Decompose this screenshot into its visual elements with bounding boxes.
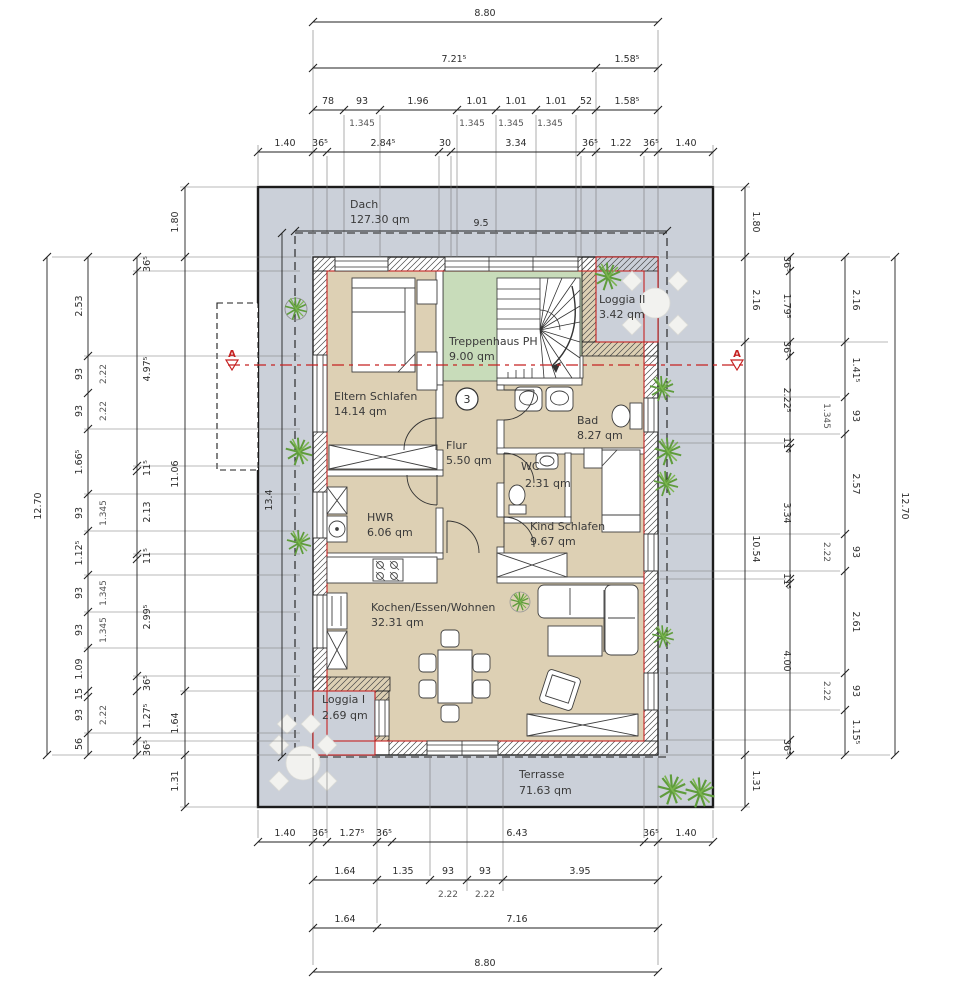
dim-label: 11⁵ bbox=[781, 437, 792, 453]
dim-label: 36⁵ bbox=[643, 138, 659, 149]
dim-label: 1.40 bbox=[675, 828, 696, 839]
dim-label: 93 bbox=[74, 507, 85, 519]
dim-label: 7.21⁵ bbox=[442, 54, 467, 65]
dim-label: 1.01 bbox=[505, 96, 526, 107]
dim-sublabel: 1.345 bbox=[349, 119, 375, 129]
dim-label: 1.96 bbox=[407, 96, 428, 107]
dim-label: 12.70 bbox=[33, 492, 44, 519]
washing-machine bbox=[327, 516, 347, 542]
dim-sublabel: 1.345 bbox=[459, 119, 485, 129]
dim-label: 15 bbox=[74, 688, 85, 700]
room-label-kind: Kind Schlafen bbox=[530, 520, 605, 533]
dimension-text-bottom: 1.40 36⁵ 1.27⁵ 36⁵ 6.43 36⁵ 1.40 1.64 1.… bbox=[274, 828, 696, 969]
dim-sublabel: 2.22 bbox=[438, 890, 458, 900]
section-letter-left: A bbox=[228, 349, 236, 360]
dim-label: 2.16 bbox=[850, 289, 861, 310]
room-label-bad: Bad bbox=[577, 414, 598, 427]
dim-label: 93 bbox=[74, 368, 85, 380]
kind-wardrobe-x bbox=[497, 553, 567, 577]
dim-label: 36⁵ bbox=[643, 828, 659, 839]
room-label-wc: WC bbox=[521, 460, 540, 473]
dach-area: 127.30 qm bbox=[350, 213, 410, 226]
dim-label: 1.01 bbox=[545, 96, 566, 107]
dim-label: 56 bbox=[74, 738, 85, 750]
dim-label: 10.54 bbox=[750, 535, 761, 562]
dim-label: 36⁵ bbox=[781, 256, 792, 272]
dim-label: 93 bbox=[74, 624, 85, 636]
dim-label: 93 bbox=[74, 405, 85, 417]
floor-plan-drawing: 8.80 7.21⁵ 1.58⁵ 78 93 1.96 1.01 1.01 1.… bbox=[0, 0, 972, 998]
dim-label: 1.64 bbox=[170, 712, 181, 733]
dim-label: 93 bbox=[74, 709, 85, 721]
dim-sublabel: 2.22 bbox=[821, 542, 831, 562]
dim-label: 1.64 bbox=[334, 866, 355, 877]
room-area-eltern: 14.14 qm bbox=[334, 405, 387, 418]
dim-label: 8.80 bbox=[474, 958, 495, 969]
room-area-bad: 8.27 qm bbox=[577, 429, 623, 442]
dim-label: 2.61 bbox=[850, 611, 861, 632]
room-label-loggia1: Loggia I bbox=[322, 693, 365, 706]
dim-sublabel: 2.22 bbox=[821, 681, 831, 701]
house bbox=[313, 257, 658, 755]
dim-sublabel: 2.22 bbox=[475, 890, 495, 900]
hwr-cabinet bbox=[327, 487, 347, 514]
storey-number: 3 bbox=[464, 393, 471, 406]
dimension-text-right: 1.80 2.16 10.54 1.31 36⁵ 1.79⁵ 36⁵ 2.22⁵… bbox=[750, 211, 910, 791]
dim-label: 1.80 bbox=[750, 211, 761, 232]
dim-label: 2.16 bbox=[750, 289, 761, 310]
dim-label: 2.84⁵ bbox=[371, 138, 396, 149]
dim-label: 1.31 bbox=[750, 770, 761, 791]
dim-label: 1.40 bbox=[274, 138, 295, 149]
carport-dashed-outline bbox=[217, 303, 258, 470]
side-table bbox=[584, 448, 602, 468]
dim-label: 78 bbox=[322, 96, 334, 107]
dim-label: 1.27⁵ bbox=[142, 703, 153, 728]
dimension-text-left: 12.70 2.53 93 93 1.66⁵ 93 1.12⁵ 93 93 1.… bbox=[33, 211, 275, 791]
dim-label: 1.40 bbox=[675, 138, 696, 149]
chair bbox=[441, 630, 459, 647]
single-bed bbox=[602, 450, 640, 532]
room-area-kind: 9.67 qm bbox=[530, 535, 576, 548]
dining-table bbox=[438, 650, 472, 703]
tall-cabinet bbox=[327, 631, 347, 669]
dresser bbox=[417, 352, 437, 390]
room-label-wohnen: Kochen/Essen/Wohnen bbox=[371, 601, 495, 614]
dim-label: 93 bbox=[74, 587, 85, 599]
dim-label: 36⁵ bbox=[142, 740, 153, 756]
dim-label: 3.34 bbox=[505, 138, 526, 149]
bed-headboard bbox=[352, 278, 415, 288]
chair bbox=[419, 654, 436, 672]
dim-label: 1.66⁵ bbox=[74, 449, 85, 474]
fridge bbox=[327, 593, 347, 629]
dim-label: 93 bbox=[356, 96, 368, 107]
dim-label: 12.70 bbox=[899, 492, 910, 519]
storey-marker: 3 bbox=[456, 388, 478, 410]
dim-label: 11⁵ bbox=[781, 573, 792, 589]
dim-label: 2.22⁵ bbox=[781, 388, 792, 413]
dim-label: 93 bbox=[850, 685, 861, 697]
dim-sublabel: 1.345 bbox=[99, 500, 109, 526]
room-area-flur: 5.50 qm bbox=[446, 454, 492, 467]
room-area-loggia2: 3.42 qm bbox=[599, 308, 645, 321]
dim-label: 1.79⁵ bbox=[781, 294, 792, 319]
wardrobe-x bbox=[329, 445, 437, 469]
dim-label: 36⁵ bbox=[312, 138, 328, 149]
dim-label: 93 bbox=[850, 410, 861, 422]
dim-label: 1.41⁵ bbox=[850, 358, 861, 383]
chair bbox=[419, 680, 436, 698]
dim-label: 1.80 bbox=[170, 211, 181, 232]
dim-sublabel: 1.345 bbox=[99, 580, 109, 606]
dim-label: 3.34 bbox=[781, 502, 792, 523]
dim-label: 1.64 bbox=[334, 914, 355, 925]
stair bbox=[497, 278, 580, 378]
dim-label: 2.99⁵ bbox=[142, 604, 153, 629]
dim-label: 2.53 bbox=[74, 295, 85, 316]
room-area-wc: 2.31 qm bbox=[525, 477, 571, 490]
stove bbox=[373, 559, 403, 581]
terrasse-area: 71.63 qm bbox=[519, 784, 572, 797]
wc-toilet bbox=[509, 485, 526, 514]
dim-sublabel: 1.345 bbox=[498, 119, 524, 129]
room-label-loggia2: Loggia II bbox=[599, 293, 645, 306]
dim-label: 52 bbox=[580, 96, 592, 107]
dim-label: 8.80 bbox=[474, 8, 495, 19]
room-area-hwr: 6.06 qm bbox=[367, 526, 413, 539]
dim-label: 11⁵ bbox=[142, 548, 153, 564]
dim-sublabel: 1.345 bbox=[821, 403, 831, 429]
dim-label: 1.15⁵ bbox=[850, 720, 861, 745]
dim-label: 1.31 bbox=[170, 770, 181, 791]
room-label-hwr: HWR bbox=[367, 511, 394, 524]
dim-sublabel: 2.22 bbox=[99, 401, 109, 421]
dim-label: 36⁵ bbox=[142, 256, 153, 272]
dim-label: 36⁵ bbox=[781, 739, 792, 755]
dim-label: 36⁵ bbox=[312, 828, 328, 839]
dim-label: 11⁵ bbox=[142, 460, 153, 476]
room-area-loggia1: 2.69 qm bbox=[322, 709, 368, 722]
dim-label: 93 bbox=[442, 866, 454, 877]
dim-label: 30 bbox=[439, 138, 451, 149]
sideboard-x bbox=[527, 714, 638, 736]
dim-label: 6.43 bbox=[506, 828, 527, 839]
nightstand bbox=[417, 280, 437, 304]
dim-sublabel: 1.345 bbox=[99, 617, 109, 643]
dim-sublabel: 1.345 bbox=[537, 119, 563, 129]
dim-label: 36⁵ bbox=[781, 341, 792, 357]
dim-label: 36⁵ bbox=[376, 828, 392, 839]
dim-label: 2.13 bbox=[142, 501, 153, 522]
room-label-eltern: Eltern Schlafen bbox=[334, 390, 417, 403]
envelope-depth-label: 13.4 bbox=[264, 489, 275, 510]
section-letter-right: A bbox=[733, 349, 741, 360]
dim-label: 4.00 bbox=[781, 650, 792, 671]
chair bbox=[441, 705, 459, 722]
dim-label: 1.27⁵ bbox=[340, 828, 365, 839]
sink bbox=[546, 387, 573, 411]
dim-label: 36⁵ bbox=[142, 675, 153, 691]
room-label-treppenhaus: Treppenhaus PH bbox=[448, 335, 538, 348]
room-area-treppenhaus: 9.00 qm bbox=[449, 350, 495, 363]
dim-label: 1.12⁵ bbox=[74, 540, 85, 565]
envelope-width-label: 9.5 bbox=[473, 218, 488, 229]
dim-sublabel: 2.22 bbox=[99, 364, 109, 384]
dim-label: 1.09 bbox=[74, 658, 85, 679]
chair bbox=[473, 654, 490, 672]
dim-label: 1.58⁵ bbox=[615, 96, 640, 107]
dim-label: 11.06 bbox=[170, 460, 181, 487]
dim-label: 1.40 bbox=[274, 828, 295, 839]
terrace-door bbox=[427, 741, 498, 755]
dim-label: 36⁵ bbox=[582, 138, 598, 149]
dim-label: 93 bbox=[479, 866, 491, 877]
dim-label: 4.97⁵ bbox=[142, 356, 153, 381]
dim-label: 1.01 bbox=[466, 96, 487, 107]
chair bbox=[473, 680, 490, 698]
dach-label: Dach bbox=[350, 198, 378, 211]
dim-label: 93 bbox=[850, 546, 861, 558]
dim-sublabel: 2.22 bbox=[99, 705, 109, 725]
room-label-flur: Flur bbox=[446, 439, 467, 452]
dim-label: 1.22 bbox=[610, 138, 631, 149]
dim-label: 3.95 bbox=[569, 866, 590, 877]
dim-label: 1.35 bbox=[392, 866, 413, 877]
double-bed bbox=[352, 288, 415, 372]
room-area-wohnen: 32.31 qm bbox=[371, 616, 424, 629]
coffee-table bbox=[548, 626, 602, 656]
dim-label: 2.57 bbox=[850, 473, 861, 494]
dim-label: 7.16 bbox=[506, 914, 527, 925]
dim-label: 1.58⁵ bbox=[615, 54, 640, 65]
terrasse-label: Terrasse bbox=[518, 768, 565, 781]
floor-plan-page: 8.80 7.21⁵ 1.58⁵ 78 93 1.96 1.01 1.01 1.… bbox=[0, 0, 972, 998]
